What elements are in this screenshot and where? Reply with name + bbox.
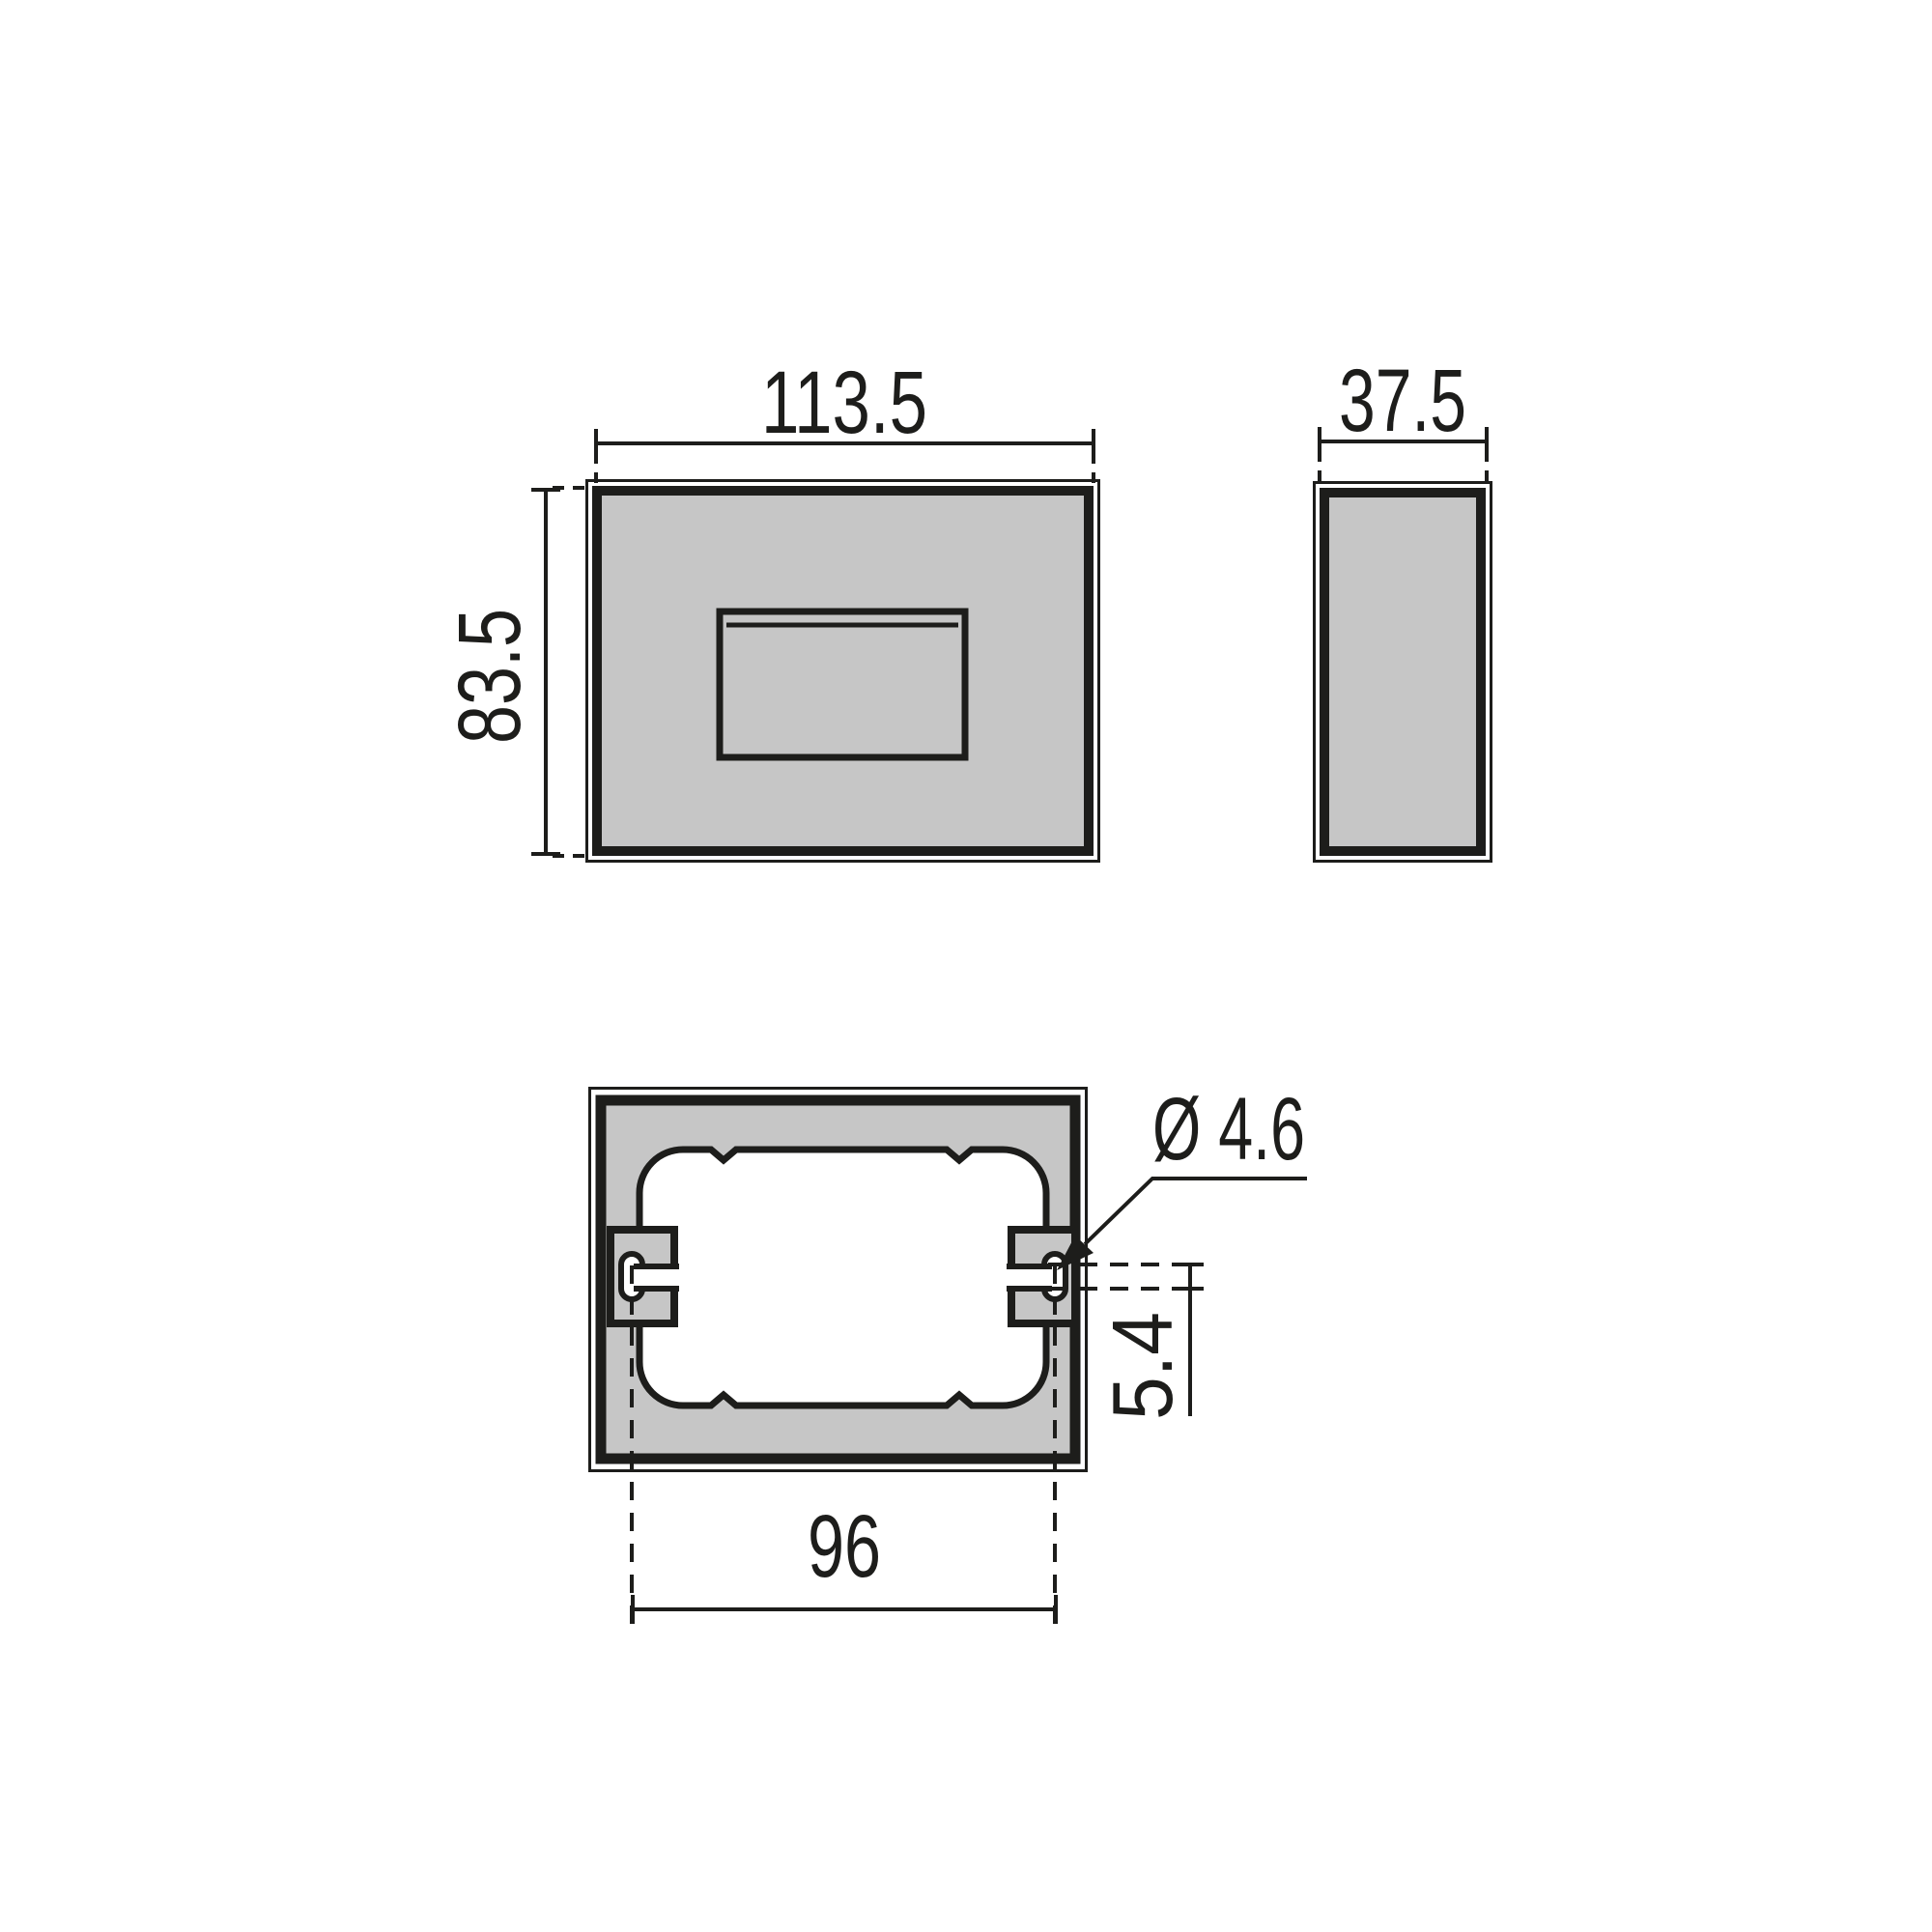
side-depth-dimension-label: 37.5: [1339, 352, 1466, 450]
side-view: [1315, 483, 1492, 862]
left-keyway-opening: [634, 1269, 679, 1286]
hole-diameter-label: Ø 4.6: [1152, 1080, 1305, 1179]
right-mounting-tab: [1007, 1230, 1075, 1323]
hole-spacing-label: 96: [808, 1497, 881, 1596]
side-view-housing-body: [1324, 493, 1481, 851]
back-view-interior-cutout: [639, 1150, 1046, 1406]
slot-offset-label: 5.4: [1094, 1312, 1190, 1420]
left-mounting-tab: [611, 1230, 679, 1323]
dimension-drawing-page: 113.5 83.5 37.5: [0, 0, 1932, 1932]
front-view-housing-body: [597, 491, 1089, 851]
front-width-dimension-label: 113.5: [761, 354, 927, 452]
technical-drawing: 113.5 83.5 37.5: [0, 0, 1932, 1932]
front-height-dimension-label: 83.5: [440, 609, 539, 744]
front-view: [587, 481, 1099, 862]
drawing-background: [0, 0, 1932, 1932]
right-keyway-opening: [1007, 1269, 1052, 1286]
